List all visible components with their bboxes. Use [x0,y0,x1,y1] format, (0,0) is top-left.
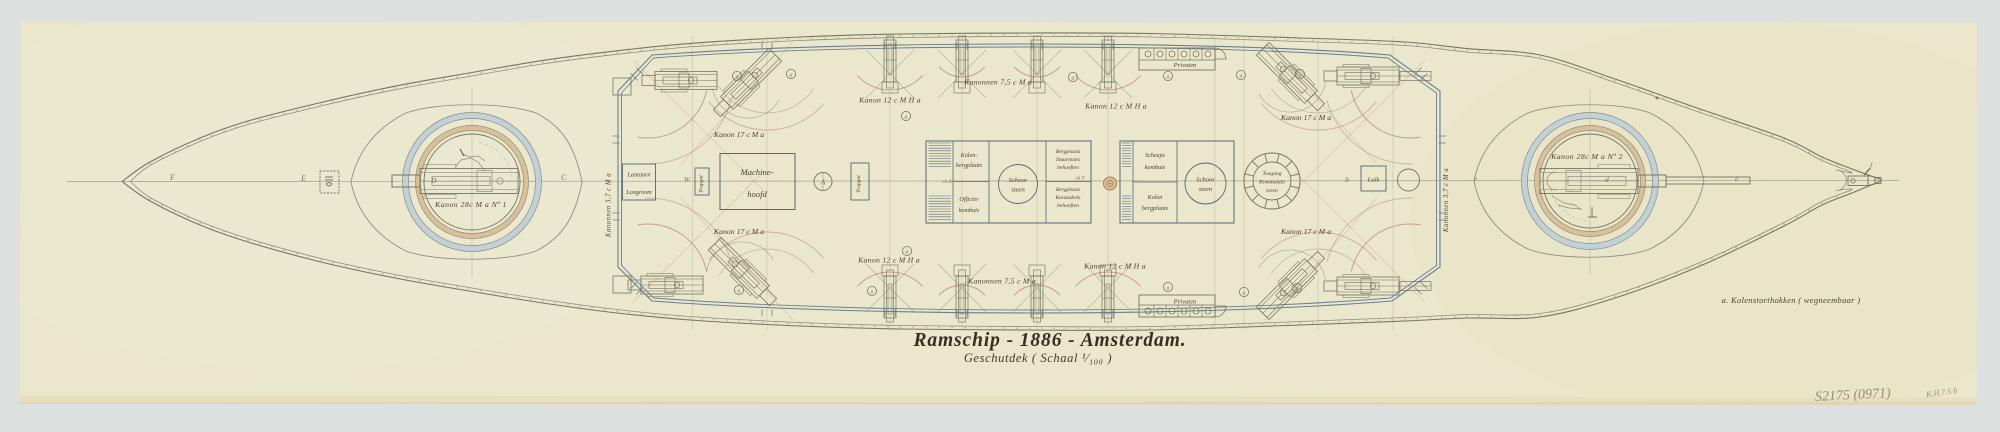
svg-text:Geschutdek ( Schaal ¹⁄₁₀₀ ): Geschutdek ( Schaal ¹⁄₁₀₀ ) [964,351,1112,365]
svg-text:a. Kolenstorthokken ( wegneemb: a. Kolenstorthokken ( wegneembaar ) [1722,295,1861,305]
svg-text:Kanonnen 3,7 c M a: Kanonnen 3,7 c M a [606,173,613,238]
svg-text:Kolen: Kolen [1147,194,1163,201]
svg-text:F: F [169,173,175,182]
svg-text:a: a [905,114,908,120]
svg-text:Konstabels: Konstabels [1055,195,1081,201]
svg-text:Ramschip - 1886 - Amsterdam.: Ramschip - 1886 - Amsterdam. [912,330,1186,351]
svg-text:a: a [1167,74,1170,80]
svg-text:a: a [1240,73,1243,79]
svg-text:Kanon 12 c M H a: Kanon 12 c M H a [1084,102,1147,111]
svg-text:W: W [684,175,691,184]
svg-text:E: E [300,174,306,183]
svg-text:a: a [790,72,793,78]
svg-text:Privaten: Privaten [1173,62,1197,69]
svg-text:Kanon 28c M a Nº 2: Kanon 28c M a Nº 2 [1550,152,1623,161]
svg-text:toren: toren [1266,188,1278,194]
svg-text:Kanon 17 c M a: Kanon 17 c M a [1280,113,1331,122]
svg-text:Kanonnen 7,5 c M a: Kanonnen 7,5 c M a [967,277,1036,286]
svg-text:Schoor: Schoor [1009,177,1028,184]
svg-text:ck A: ck A [942,179,952,185]
svg-text:hoofd: hoofd [747,189,767,199]
svg-text:Kommando: Kommando [1258,180,1285,186]
svg-text:A: A [820,178,826,187]
svg-text:d: d [1605,175,1609,184]
svg-text:Trapgat: Trapgat [699,175,705,193]
svg-text:Kolen-: Kolen- [960,152,978,159]
svg-text:Kanon 17 c M a: Kanon 17 c M a [713,227,764,236]
svg-text:behoeften: behoeften [1057,202,1079,209]
svg-text:a: a [738,288,741,294]
svg-text:Lantaarn: Lantaarn [626,172,650,179]
svg-text:Bergplaats: Bergplaats [1056,149,1080,155]
svg-text:Schoor: Schoor [1196,177,1215,184]
svg-text:a: a [736,74,739,80]
svg-text:Kanonnen 3,7 c M a: Kanonnen 3,7 c M a [1443,168,1450,233]
svg-text:kombuis: kombuis [1145,164,1166,171]
svg-text:kombuis: kombuis [959,207,980,214]
svg-text:Officier: Officier [959,196,979,203]
svg-text:Trapgat: Trapgat [856,175,862,193]
svg-text:steen: steen [1199,186,1213,193]
svg-text:Bergplaats: Bergplaats [1056,187,1080,193]
svg-text:Longroom: Longroom [625,189,652,196]
svg-text:a: a [871,289,874,295]
svg-text:bergplaats: bergplaats [1142,205,1169,212]
svg-text:Machine-: Machine- [740,167,774,177]
svg-text:steen: steen [1011,187,1025,194]
svg-text:Privaten: Privaten [1173,299,1197,306]
svg-text:a: a [1072,75,1075,81]
svg-text:ck V: ck V [1075,176,1085,182]
svg-text:Kanon 28c M a Nº 1: Kanon 28c M a Nº 1 [434,200,507,209]
svg-text:a: a [1167,285,1170,291]
svg-text:behoeften: behoeften [1057,164,1079,171]
svg-text:a: a [1296,286,1299,292]
svg-text:Kanon 17 c M a: Kanon 17 c M a [713,130,764,139]
svg-text:Luik: Luik [1367,177,1381,184]
svg-text:Kanon 17 c M a: Kanon 17 c M a [1280,227,1331,236]
svg-text:Kanon 12 c M H a: Kanon 12 c M H a [1083,262,1146,271]
svg-text:Kanon 12 c M H a: Kanon 12 c M H a [857,256,920,265]
svg-text:D: D [430,176,437,185]
svg-text:Kanonnen 7,5 c M a: Kanonnen 7,5 c M a [963,78,1032,87]
svg-text:bergplaats: bergplaats [956,162,983,169]
svg-text:Stuurmans: Stuurmans [1056,157,1080,163]
svg-text:C: C [561,173,567,182]
svg-text:a: a [906,249,909,255]
svg-text:Kanon 12 c M H a: Kanon 12 c M H a [858,96,921,105]
svg-text:a: a [1299,72,1302,78]
svg-text:Scheeps: Scheeps [1145,152,1166,159]
svg-text:b: b [1345,175,1349,184]
svg-text:a: a [1243,290,1246,296]
svg-text:Toegang: Toegang [1262,171,1281,177]
